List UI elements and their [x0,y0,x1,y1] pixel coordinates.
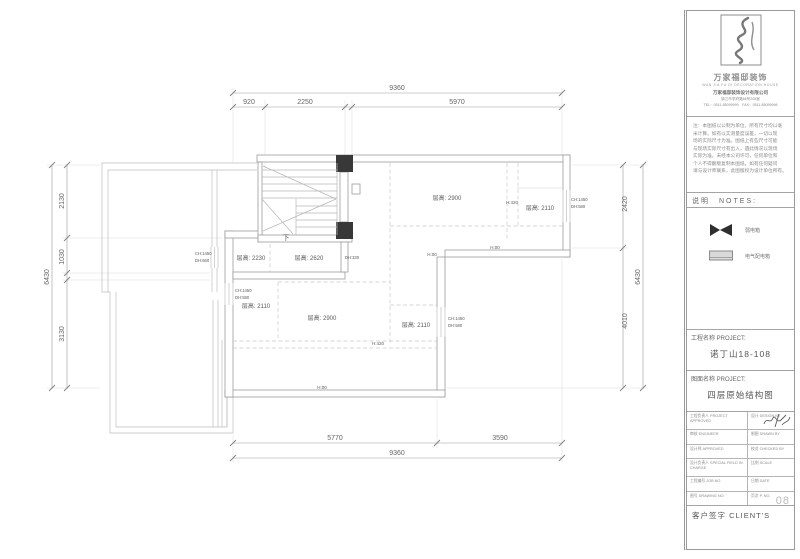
window-label: CH:1450 [235,288,252,293]
field-label-text: 页次 P. NO. [751,494,771,498]
signature-table: 工程负责人 PROJECT APPROVED 设计 DESIGN BY 审核 E… [687,412,794,506]
dim-left: 3130 [59,326,66,342]
room-height-label: 层高: 2110 [242,302,271,310]
legend-item-label: 电气配电箱 [745,253,770,260]
dim-left-total: 6430 [44,269,51,285]
window-label: DH:660 [195,258,210,263]
level-label: H:420 [506,200,519,205]
drawing-name-label: 图面名称 PROJECT: [691,374,790,383]
disclaimer-line: 请与设计师联系，此图版权为设计单位所有。 [693,167,788,175]
window-label: CH:1450 [195,251,212,256]
field-label: 制图 DRAWN BY [748,430,794,443]
dim-top: 2250 [297,99,313,106]
disclaimer-line: 注：本图纸以公制为单位，所有尺寸均以毫 [693,122,788,130]
level-label: H:00 [317,385,327,390]
disclaimer-line: 与现场实际尺寸有出入，遇此情况以现场 [693,145,788,153]
designer-signature [762,413,792,428]
legend-item-label: 弱电箱 [745,227,760,234]
floor-plan-canvas: 层高: 2900H:420层高: 2110CH:1450DH:580H:00H:… [0,0,800,559]
field-label: 日期 DATE [748,477,794,490]
disclaimer-line: 场的实际尺寸为准。图纸上有些尺寸可能 [693,137,788,145]
window-label: CH:1450 [571,197,588,202]
distribution-box-icon [709,250,733,262]
field-label: 设计 DESIGN BY [748,412,794,429]
level-label: H:420 [372,341,385,346]
table-row: 审核 ENGINEER 制图 DRAWN BY [687,430,794,444]
dim-top-total: 9360 [389,85,405,92]
field-label: 工程负责人 PROJECT APPROVED [687,412,748,429]
dim-top: 5970 [449,99,465,106]
room-height-label: 层高: 2620 [295,254,324,262]
stair-down-label: 下 [283,234,290,242]
drawing-sheet: 层高: 2900H:420层高: 2110CH:1450DH:580H:00H:… [0,0,800,559]
project-name-section: 工程名称 PROJECT: 诺丁山18-108 [687,330,794,371]
field-label: 页次 P. NO. 08 [748,492,794,505]
weak-current-box-icon [709,224,733,236]
level-label: H:00 [490,245,500,250]
staircase [262,163,337,235]
company-logo-icon [718,14,764,66]
dim-left: 1030 [59,249,66,265]
field-label: 图号 DRAWING NO. [687,492,748,505]
dim-left: 2130 [59,193,66,209]
company-phone: TEL：0511-85099999 FAX：0511-85099998 [687,103,794,108]
project-name-value: 诺丁山18-108 [691,348,790,360]
table-row: 工程负责人 PROJECT APPROVED 设计 DESIGN BY [687,412,794,430]
disclaimer-notes: 注：本图纸以公制为单位，所有尺寸均以毫米计算。如有以实测量度误差，一切以现场的实… [687,117,794,193]
drawing-name-section: 图面名称 PROJECT: 四层原始结构图 [687,371,794,412]
table-row: 图号 DRAWING NO. 页次 P. NO. 08 [687,492,794,505]
dim-bottom-total: 9360 [389,450,405,457]
room-height-label: 层高: 2110 [402,321,431,329]
legend-section: 弱电箱 电气配电箱 [687,208,794,330]
legend-item: 电气配电箱 [709,250,794,262]
table-row: 设计师 APPROVED 校对 CHECKED BY [687,445,794,459]
window-label: DH:580 [448,323,463,328]
client-signature-section: 客户签字 CLIENT'S [687,506,794,549]
field-label: 工程编号 JOB NO. [687,477,748,490]
window-label: DH:580 [571,204,586,209]
table-row: 工程编号 JOB NO. 日期 DATE [687,477,794,491]
field-label: 设计负责人 SPECIAL FIELD IN CHARGE [687,459,748,476]
window-label: DH:580 [235,295,250,300]
dimension-lines [52,93,643,458]
brand-name-en: WAN JIA FU DI DECORATION HOUSE [687,83,794,87]
field-label: 审核 ENGINEER [687,430,748,443]
disclaimer-line: 米计算。如有以实测量度误差，一切以现 [693,130,788,138]
level-label: H:00 [427,252,437,257]
legend-item: 弱电箱 [709,224,794,236]
company-address: 镇江市学府路66号208室 [687,97,794,102]
room-height-label: 层高: 2900 [433,194,462,202]
windows [211,190,571,337]
disclaimer-line: 个人不得翻版复制本图纸。如有任何疑问 [693,160,788,168]
company-logo-section: 万家福邸装饰 WAN JIA FU DI DECORATION HOUSE 万家… [687,11,794,117]
dim-right: 2420 [622,196,629,212]
dim-right-total: 6430 [635,269,642,285]
dim-top: 920 [243,99,255,106]
dim-right: 4010 [622,313,629,329]
dim-bottom: 5770 [327,435,343,442]
disclaimer-line: 实际为准。未经本公司许可，任何单位和 [693,152,788,160]
drawing-name-value: 四层原始结构图 [691,389,790,401]
company-name: 万家福邸装饰设计有限公司 [687,90,794,96]
notes-header: 说明 NOTES: [687,193,794,208]
field-label: 校对 CHECKED BY [748,445,794,458]
window-label: CH:1450 [448,316,465,321]
table-row: 设计负责人 SPECIAL FIELD IN CHARGE 比例 SCALE [687,459,794,477]
dim-bottom: 3590 [492,435,508,442]
window-label: DH:330 [345,255,360,260]
field-label: 比例 SCALE [748,459,794,476]
field-label: 设计师 APPROVED [687,445,748,458]
dimension-ticks [49,90,646,461]
room-height-label: 层高: 2230 [237,254,266,262]
title-block: 万家福邸装饰 WAN JIA FU DI DECORATION HOUSE 万家… [684,10,795,550]
page-number: 08 [776,495,790,505]
brand-name: 万家福邸装饰 [687,72,794,83]
extension-lines [47,88,648,462]
room-height-label: 层高: 2900 [308,314,337,322]
project-name-label: 工程名称 PROJECT: [691,333,790,342]
room-height-label: 层高: 2110 [526,204,555,212]
